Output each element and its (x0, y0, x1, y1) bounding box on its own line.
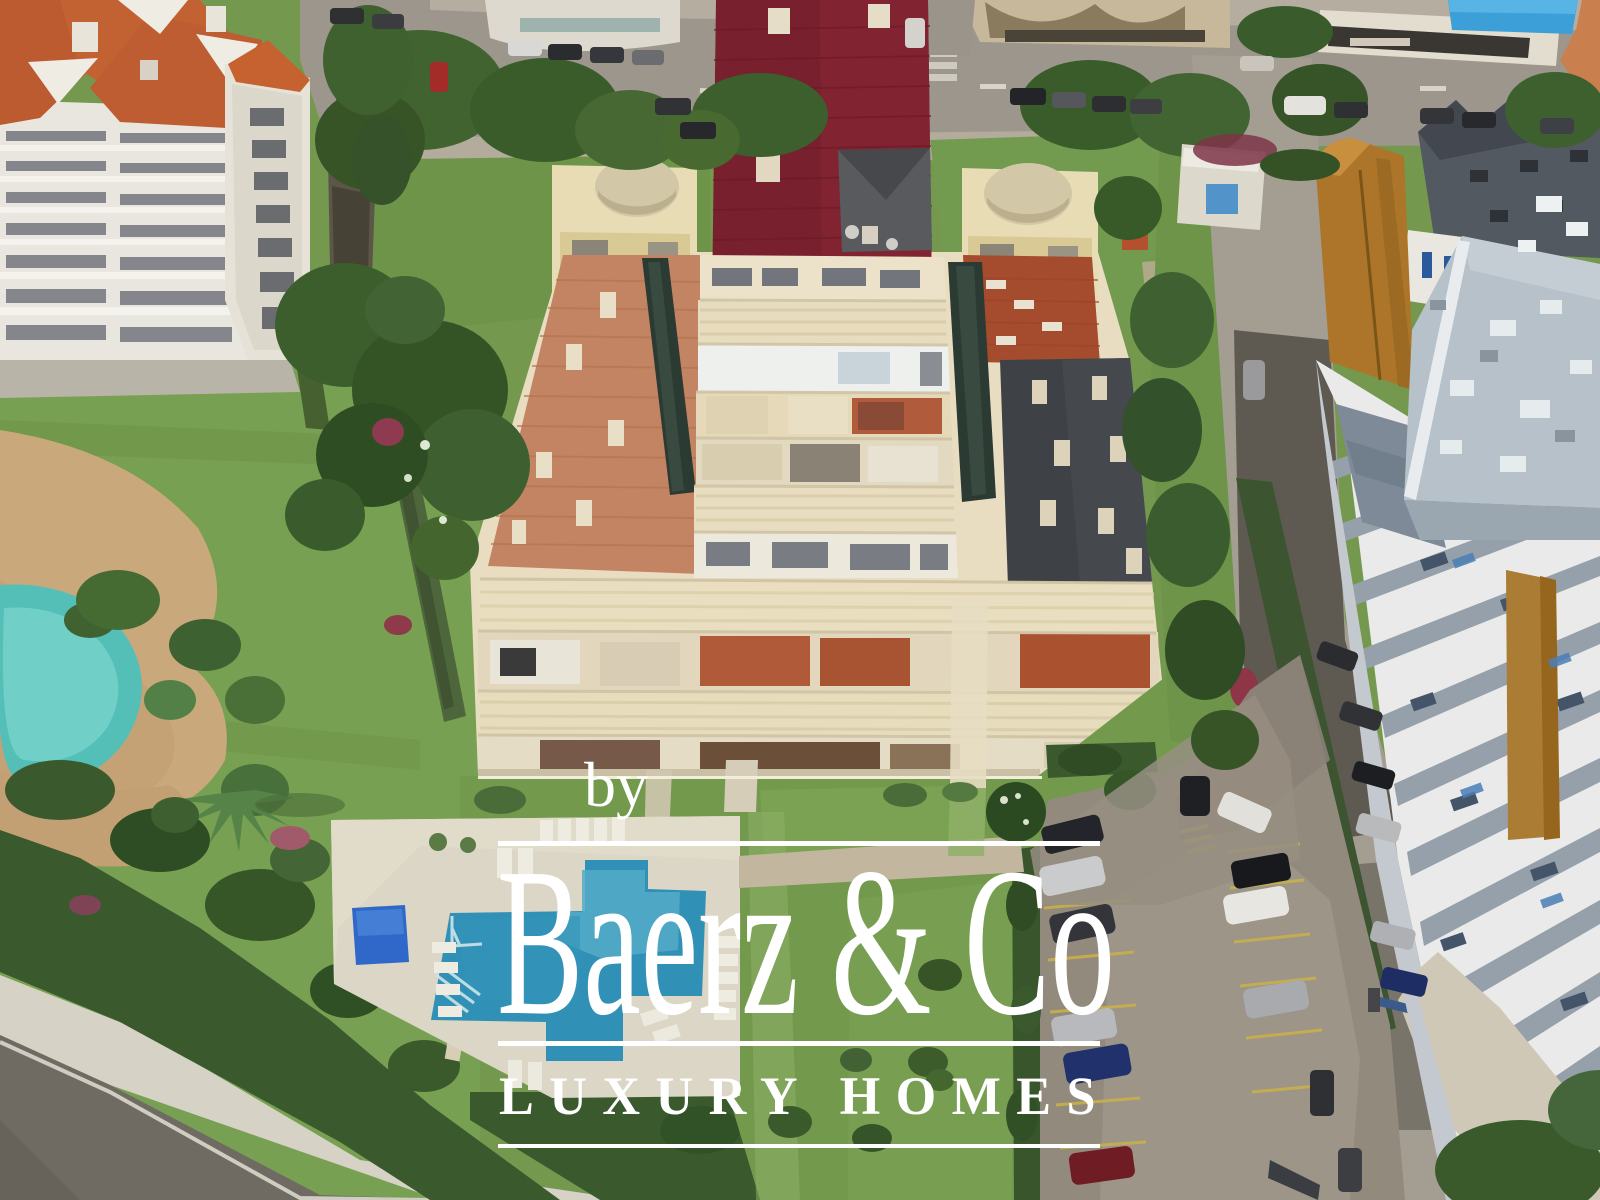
svg-text:by: by (584, 749, 648, 820)
svg-text:LUXURY HOMES: LUXURY HOMES (499, 1066, 1111, 1126)
svg-text:Baerz & Co: Baerz & Co (497, 824, 1115, 1059)
